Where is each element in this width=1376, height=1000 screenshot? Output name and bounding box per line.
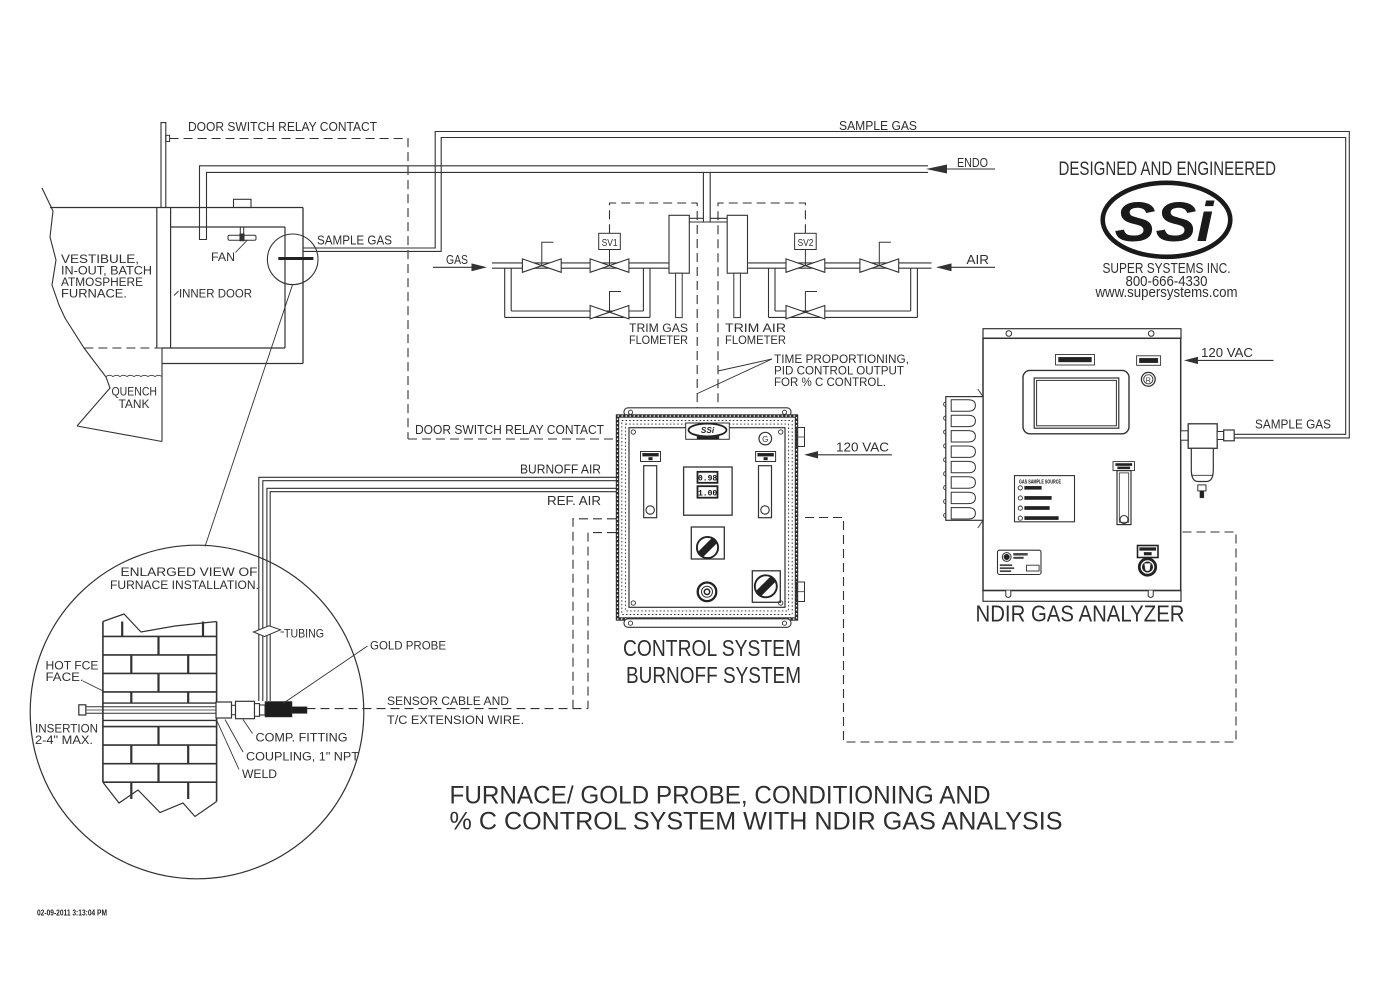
svg-text:FURNACE.: FURNACE. (61, 287, 127, 301)
svg-text:FURNACE INSTALLATION.: FURNACE INSTALLATION. (110, 578, 259, 592)
svg-text:SV2: SV2 (798, 238, 814, 249)
svg-text:0.98: 0.98 (698, 475, 717, 484)
svg-text:REF. AIR: REF. AIR (547, 493, 601, 508)
svg-text:FLOMETER: FLOMETER (725, 333, 786, 347)
svg-text:BURNOFF SYSTEM: BURNOFF SYSTEM (626, 662, 801, 688)
svg-text:SENSOR CABLE AND: SENSOR CABLE AND (387, 694, 509, 708)
svg-text:R: R (1146, 377, 1151, 384)
svg-text:ENLARGED VIEW OF: ENLARGED VIEW OF (121, 565, 258, 579)
svg-text:SAMPLE GAS: SAMPLE GAS (839, 118, 917, 133)
svg-text:120 VAC: 120 VAC (836, 440, 889, 455)
svg-text:AIR: AIR (967, 252, 990, 267)
svg-text:% C CONTROL SYSTEM WITH NDIR G: % C CONTROL SYSTEM WITH NDIR GAS ANALYSI… (450, 808, 1063, 836)
svg-text:T/C EXTENSION WIRE.: T/C EXTENSION WIRE. (387, 713, 524, 727)
svg-text:DESIGNED AND ENGINEERED: DESIGNED AND ENGINEERED (1059, 158, 1277, 180)
svg-text:1.00: 1.00 (698, 489, 717, 498)
svg-text:DOOR SWITCH RELAY CONTACT: DOOR SWITCH RELAY CONTACT (188, 119, 377, 134)
svg-text:SSi: SSi (701, 426, 715, 435)
svg-text:NDIR GAS ANALYZER: NDIR GAS ANALYZER (976, 601, 1185, 627)
svg-text:WELD: WELD (242, 767, 277, 781)
svg-text:TUBING: TUBING (284, 627, 324, 641)
svg-text:GAS SAMPLE SOURCE: GAS SAMPLE SOURCE (1019, 479, 1061, 485)
svg-text:SAMPLE GAS: SAMPLE GAS (317, 233, 392, 248)
svg-text:SV1: SV1 (602, 238, 618, 249)
svg-text:G: G (762, 435, 768, 444)
svg-text:GOLD PROBE: GOLD PROBE (370, 639, 446, 653)
svg-text:BURNOFF AIR: BURNOFF AIR (520, 462, 601, 477)
svg-text:ENDO: ENDO (957, 155, 988, 170)
svg-text:2-4" MAX.: 2-4" MAX. (35, 733, 93, 747)
svg-text:INNER DOOR: INNER DOOR (179, 287, 252, 301)
svg-text:DOOR SWITCH RELAY CONTACT: DOOR SWITCH RELAY CONTACT (415, 422, 604, 437)
svg-text:FURNACE/ GOLD PROBE, CONDITION: FURNACE/ GOLD PROBE, CONDITIONING AND (450, 782, 991, 810)
svg-text:02-09-2011 3:13:04 PM: 02-09-2011 3:13:04 PM (37, 909, 107, 918)
svg-text:FACE.: FACE. (46, 670, 84, 684)
svg-text:TANK: TANK (119, 397, 150, 411)
svg-text:COUPLING, 1" NPT: COUPLING, 1" NPT (246, 750, 359, 764)
svg-text:FAN: FAN (211, 250, 235, 264)
svg-text:120 VAC: 120 VAC (1201, 345, 1253, 360)
svg-text:www.supersystems.com: www.supersystems.com (1095, 284, 1238, 301)
svg-text:SAMPLE GAS: SAMPLE GAS (1255, 417, 1331, 432)
svg-text:FOR % C CONTROL.: FOR % C CONTROL. (774, 376, 886, 389)
svg-text:CONTROL SYSTEM: CONTROL SYSTEM (623, 635, 801, 661)
svg-text:FLOMETER: FLOMETER (629, 333, 688, 347)
svg-text:COMP. FITTING: COMP. FITTING (256, 731, 348, 745)
svg-text:SSi: SSi (1115, 190, 1216, 253)
svg-text:GAS: GAS (446, 252, 468, 267)
